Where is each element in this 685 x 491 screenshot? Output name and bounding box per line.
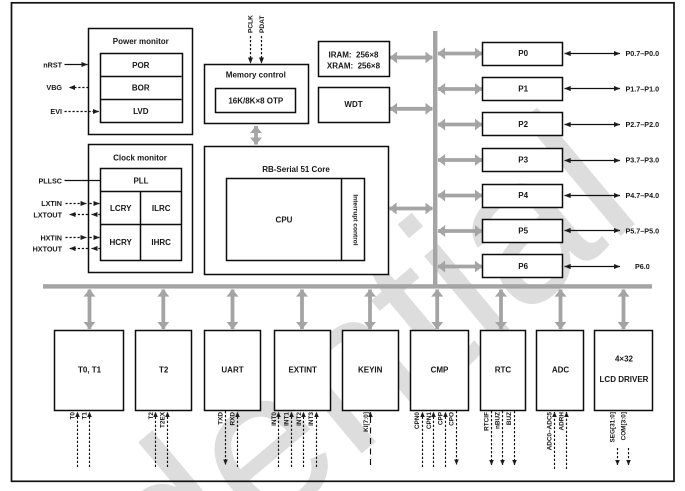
svg-text:ADC: ADC (552, 366, 570, 375)
svg-text:P5: P5 (518, 227, 528, 236)
svg-text:BUZ: BUZ (506, 412, 513, 425)
svg-text:XRAM: 256×8: XRAM: 256×8 (327, 61, 381, 70)
svg-text:T0, T1: T0, T1 (78, 366, 102, 375)
svg-text:HXTOUT: HXTOUT (33, 245, 63, 254)
svg-text:P3: P3 (518, 156, 528, 165)
svg-text:ILRC: ILRC (152, 204, 171, 213)
svg-text:RTC: RTC (495, 366, 512, 375)
svg-text:P6.0: P6.0 (635, 262, 650, 271)
svg-text:CPN0: CPN0 (414, 412, 421, 429)
svg-text:P2: P2 (518, 120, 528, 129)
svg-text:P2.7–P2.0: P2.7–P2.0 (626, 120, 660, 129)
svg-text:BOR: BOR (132, 84, 150, 93)
svg-text:16K/8K×8 OTP: 16K/8K×8 OTP (228, 97, 284, 106)
svg-text:RB-Serial 51 Core: RB-Serial 51 Core (262, 165, 330, 174)
svg-text:HCRY: HCRY (110, 238, 133, 247)
svg-text:IRAM: 256×8: IRAM: 256×8 (328, 50, 379, 59)
svg-text:LXTOUT: LXTOUT (33, 211, 62, 220)
svg-text:T2: T2 (159, 366, 169, 375)
svg-text:P1: P1 (518, 85, 528, 94)
svg-text:LCRY: LCRY (110, 204, 132, 213)
svg-text:T1: T1 (82, 412, 89, 420)
svg-text:P4.7–P4.0: P4.7–P4.0 (626, 191, 660, 200)
svg-text:KI[7:0]: KI[7:0] (363, 412, 370, 432)
svg-text:INT2: INT2 (296, 412, 303, 426)
svg-text:Power monitor: Power monitor (113, 37, 169, 46)
svg-text:CMP: CMP (431, 366, 449, 375)
svg-text:INT1: INT1 (283, 412, 290, 426)
svg-text:RXD: RXD (229, 412, 236, 426)
svg-text:EVI: EVI (50, 107, 62, 116)
svg-text:LCD DRIVER: LCD DRIVER (600, 375, 649, 384)
svg-text:nRST: nRST (43, 61, 62, 70)
svg-text:INT3: INT3 (308, 412, 315, 426)
svg-text:TXD: TXD (218, 412, 225, 425)
svg-text:PCLK: PCLK (248, 15, 255, 33)
svg-text:COM[3:0]: COM[3:0] (621, 412, 628, 440)
svg-text:Memory control: Memory control (226, 71, 286, 80)
svg-text:P3.7–P3.0: P3.7–P3.0 (626, 156, 660, 165)
svg-text:POR: POR (132, 61, 150, 70)
svg-text:P1.7–P1.0: P1.7–P1.0 (626, 85, 660, 94)
svg-text:PLLSC: PLLSC (38, 177, 62, 186)
svg-text:SEG[31:0]: SEG[31:0] (610, 412, 617, 443)
svg-text:P0: P0 (518, 49, 528, 58)
svg-text:VBG: VBG (46, 83, 62, 92)
svg-text:P5.7–P5.0: P5.7–P5.0 (626, 227, 660, 236)
svg-text:IHRC: IHRC (151, 238, 171, 247)
svg-text:CPU: CPU (276, 216, 293, 225)
svg-text:HXTIN: HXTIN (40, 233, 62, 242)
svg-text:EXTINT: EXTINT (288, 366, 317, 375)
svg-text:CPO: CPO (449, 412, 456, 426)
svg-text:PDAT: PDAT (259, 16, 266, 33)
svg-text:Interrupt control: Interrupt control (351, 194, 358, 245)
svg-text:KEYIN: KEYIN (358, 366, 383, 375)
svg-text:T2EX: T2EX (160, 411, 167, 428)
svg-text:INT0: INT0 (271, 412, 278, 426)
svg-text:CPP: CPP (437, 411, 444, 425)
svg-text:Clock monitor: Clock monitor (113, 154, 167, 163)
svg-text:ADC0–ADC5: ADC0–ADC5 (546, 412, 553, 451)
svg-text:UART: UART (221, 366, 243, 375)
svg-text:RTCIF: RTCIF (483, 412, 490, 431)
svg-text:LVD: LVD (133, 107, 149, 116)
svg-text:WDT: WDT (344, 100, 362, 109)
svg-text:P4: P4 (518, 191, 528, 200)
svg-text:nBUZ: nBUZ (494, 412, 501, 429)
svg-text:T0: T0 (70, 412, 77, 420)
svg-text:P6: P6 (518, 262, 528, 271)
svg-text:PLL: PLL (133, 177, 148, 186)
svg-text:P0.7–P0.0: P0.7–P0.0 (626, 49, 660, 58)
svg-text:4×32: 4×32 (615, 355, 634, 364)
svg-text:T2: T2 (148, 412, 155, 420)
svg-text:CPN1: CPN1 (426, 412, 433, 429)
svg-text:LXTIN: LXTIN (41, 199, 62, 208)
svg-text:ADRH: ADRH (558, 412, 565, 431)
